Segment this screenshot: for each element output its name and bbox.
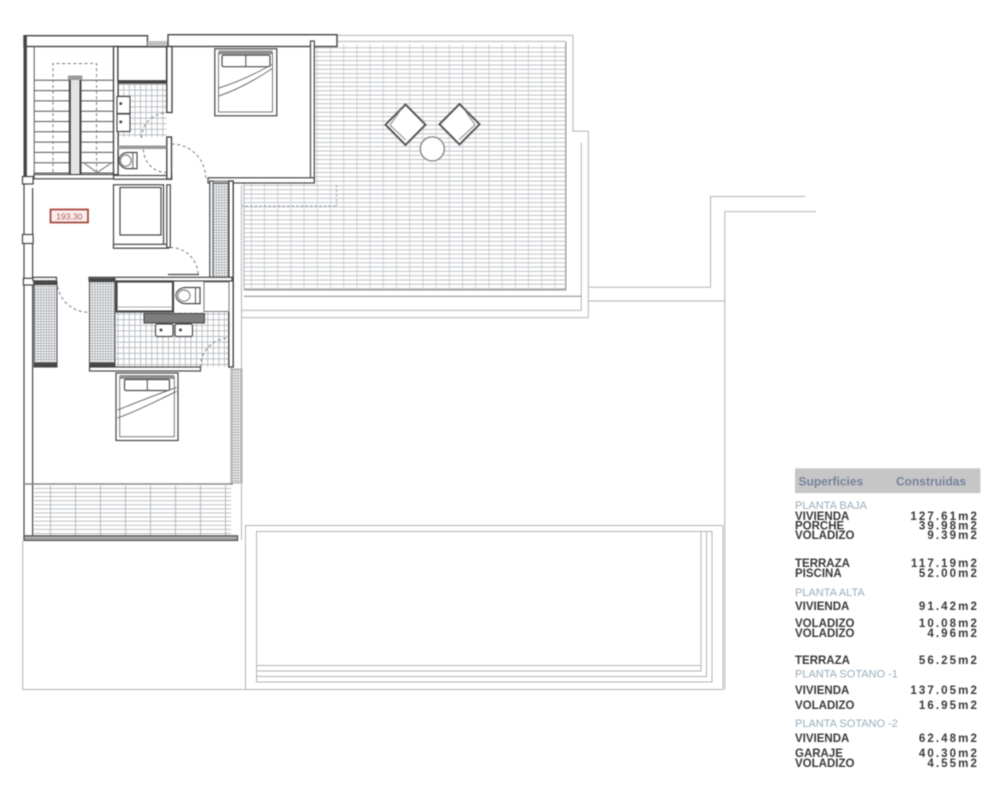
svg-text:9.39m2: 9.39m2	[927, 530, 979, 542]
svg-text:VIVIENDA: VIVIENDA	[795, 733, 849, 745]
svg-text:VOLADIZO: VOLADIZO	[795, 700, 854, 712]
svg-text:VIVIENDA: VIVIENDA	[795, 685, 849, 697]
svg-text:PISCINA: PISCINA	[795, 568, 842, 580]
svg-text:Superficies: Superficies	[799, 475, 864, 489]
svg-text:PLANTA SOTANO -1: PLANTA SOTANO -1	[795, 669, 898, 681]
svg-text:VOLADIZO: VOLADIZO	[795, 758, 854, 770]
svg-text:91.42m2: 91.42m2	[919, 601, 979, 613]
svg-text:Construidas: Construidas	[896, 475, 966, 489]
svg-text:193.30: 193.30	[56, 211, 83, 221]
svg-text:62.48m2: 62.48m2	[919, 733, 979, 745]
svg-text:137.05m2: 137.05m2	[910, 685, 979, 697]
svg-text:52.00m2: 52.00m2	[919, 568, 979, 580]
svg-text:VOLADIZO: VOLADIZO	[795, 530, 854, 542]
svg-text:VIVIENDA: VIVIENDA	[795, 601, 849, 613]
svg-text:56.25m2: 56.25m2	[919, 655, 979, 667]
svg-text:4.96m2: 4.96m2	[927, 628, 979, 640]
svg-text:VOLADIZO: VOLADIZO	[795, 628, 854, 640]
svg-text:TERRAZA: TERRAZA	[795, 655, 850, 667]
svg-text:16.95m2: 16.95m2	[919, 700, 979, 712]
svg-text:PLANTA SOTANO -2: PLANTA SOTANO -2	[795, 718, 898, 730]
svg-text:4.55m2: 4.55m2	[927, 758, 979, 770]
svg-text:PLANTA ALTA: PLANTA ALTA	[795, 587, 865, 599]
